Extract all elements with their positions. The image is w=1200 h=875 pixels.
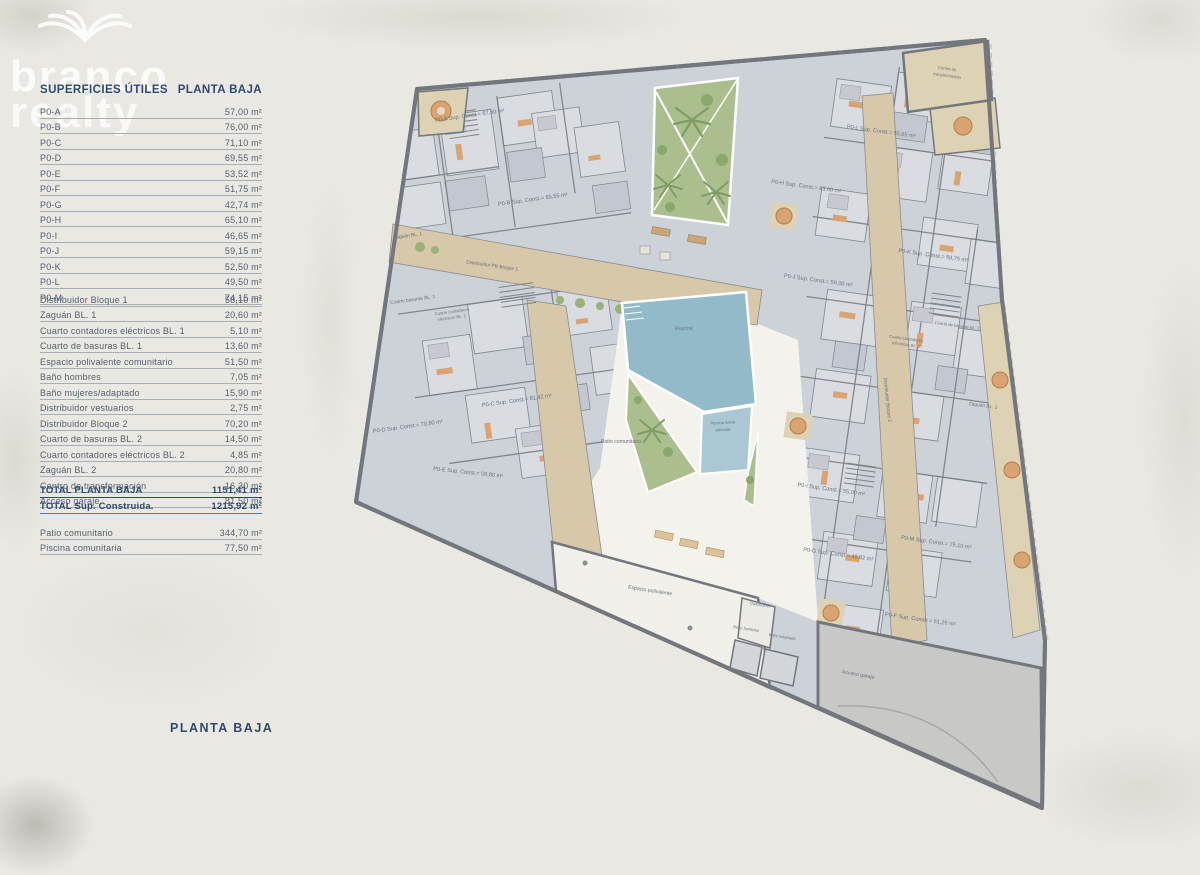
- table-row: Espacio polivalente comunitario51,50 m²: [40, 353, 262, 369]
- row-value: 4,85 m²: [230, 450, 262, 460]
- row-label: Distribuidor Bloque 2: [40, 419, 128, 429]
- row-label: P0-L: [40, 277, 60, 287]
- row-value: 20,80 m²: [225, 465, 262, 475]
- row-label: TOTAL PLANTA BAJA: [40, 485, 143, 496]
- row-label: P0-G: [40, 200, 62, 210]
- totals-table: TOTAL PLANTA BAJA1151,41 m²TOTAL Sup. Co…: [40, 481, 262, 514]
- row-value: 71,10 m²: [225, 138, 262, 148]
- row-value: 15,90 m²: [225, 388, 262, 398]
- raised-pool: [700, 406, 752, 474]
- row-value: 51,50 m²: [225, 357, 262, 367]
- row-label: Cuarto de basuras BL. 2: [40, 434, 142, 444]
- row-label: Cuarto contadores eléctricos BL. 2: [40, 450, 185, 460]
- table-row: Baño mujeres/adaptado15,90 m²: [40, 384, 262, 400]
- row-value: 53,52 m²: [225, 169, 262, 179]
- row-value: 52,50 m²: [225, 262, 262, 272]
- table-row: Distribuidor vestuarios2,75 m²: [40, 400, 262, 416]
- table-row: P0-D69,55 m²: [40, 150, 262, 166]
- row-value: 76,00 m²: [225, 122, 262, 132]
- table-row: Baño hombres7,05 m²: [40, 369, 262, 385]
- row-value: 13,60 m²: [225, 341, 262, 351]
- row-label: Zaguán BL. 2: [40, 465, 96, 475]
- table-row: Cuarto contadores eléctricos BL. 24,85 m…: [40, 446, 262, 462]
- row-label: P0-J: [40, 246, 59, 256]
- table-row: Piscina comunitaria77,50 m²: [40, 540, 262, 556]
- table-row: P0-F51,75 m²: [40, 181, 262, 197]
- table-row: P0-A57,00 m²: [40, 103, 262, 119]
- table-row: Cuarto de basuras BL. 214,50 m²: [40, 431, 262, 447]
- row-label: P0-I: [40, 231, 57, 241]
- extras-table: Patio comunitario344,70 m²Piscina comuni…: [40, 524, 262, 555]
- table-row: Cuarto contadores eléctricos BL. 15,10 m…: [40, 322, 262, 338]
- row-value: 69,55 m²: [225, 153, 262, 163]
- row-value: 65,10 m²: [225, 215, 262, 225]
- row-label: Patio comunitario: [40, 528, 113, 538]
- palm-logo-icon: [10, 10, 160, 52]
- row-label: Distribuidor Bloque 1: [40, 295, 128, 305]
- row-value: 77,50 m²: [225, 543, 262, 553]
- row-label: Piscina comunitaria: [40, 543, 122, 553]
- row-value: 59,15 m²: [225, 246, 262, 256]
- table-header: SUPERFICIES ÚTILES PLANTA BAJA: [40, 84, 262, 96]
- header-planta-baja: PLANTA BAJA: [178, 84, 262, 96]
- row-value: 14,50 m²: [225, 434, 262, 444]
- row-label: Cuarto contadores eléctricos BL. 1: [40, 326, 185, 336]
- table-row: P0-H65,10 m²: [40, 212, 262, 228]
- row-value: 70,20 m²: [225, 419, 262, 429]
- row-value: 46,65 m²: [225, 231, 262, 241]
- row-label: Baño mujeres/adaptado: [40, 388, 140, 398]
- row-label: P0-B: [40, 122, 61, 132]
- row-label: P0-E: [40, 169, 61, 179]
- header-superficies: SUPERFICIES ÚTILES: [40, 84, 168, 96]
- table-row: P0-J59,15 m²: [40, 243, 262, 259]
- row-label: Espacio polivalente comunitario: [40, 357, 173, 367]
- table-row: TOTAL Sup. Construida.1215,92 m²: [40, 498, 262, 515]
- row-label: Baño hombres: [40, 372, 101, 382]
- table-row: P0-K52,50 m²: [40, 258, 262, 274]
- table-row: P0-C71,10 m²: [40, 134, 262, 150]
- row-value: 51,75 m²: [225, 184, 262, 194]
- row-label: P0-C: [40, 138, 61, 148]
- table-row: Zaguán BL. 220,80 m²: [40, 462, 262, 478]
- row-value: 49,50 m²: [225, 277, 262, 287]
- row-value: 1215,92 m²: [211, 501, 262, 512]
- row-label: Distribuidor vestuarios: [40, 403, 134, 413]
- table-row: P0-L49,50 m²: [40, 274, 262, 290]
- page-title: PLANTA BAJA: [170, 721, 273, 735]
- row-value: 1151,41 m²: [212, 485, 262, 496]
- row-value: 344,70 m²: [220, 528, 262, 538]
- row-label: P0-A: [40, 107, 61, 117]
- table-row: P0-G42,74 m²: [40, 196, 262, 212]
- row-value: 58,10 m²: [225, 295, 262, 305]
- table-row: Patio comunitario344,70 m²: [40, 524, 262, 540]
- raised-pool-label: elevada: [715, 427, 731, 433]
- table-row: Zaguán BL. 120,60 m²: [40, 307, 262, 323]
- row-label: P0-D: [40, 153, 61, 163]
- units-table: P0-A57,00 m²P0-B76,00 m²P0-C71,10 m²P0-D…: [40, 103, 262, 305]
- row-value: 2,75 m²: [230, 403, 262, 413]
- table-row: Cuarto de basuras BL. 113,60 m²: [40, 338, 262, 354]
- row-label: P0-H: [40, 215, 61, 225]
- table-row: Distribuidor Bloque 270,20 m²: [40, 415, 262, 431]
- row-value: 5,10 m²: [230, 326, 262, 336]
- row-label: TOTAL Sup. Construida.: [40, 501, 154, 512]
- surface-table-panel: branco realty SUPERFICIES ÚTILES PLANTA …: [0, 0, 320, 849]
- table-row: TOTAL PLANTA BAJA1151,41 m²: [40, 481, 262, 498]
- row-value: 42,74 m²: [225, 200, 262, 210]
- row-label: P0-F: [40, 184, 60, 194]
- row-label: P0-K: [40, 262, 61, 272]
- row-label: Cuarto de basuras BL. 1: [40, 341, 142, 351]
- row-value: 20,60 m²: [225, 310, 262, 320]
- pool-label: Piscina: [675, 326, 693, 333]
- common-areas-table: Distribuidor Bloque 158,10 m²Zaguán BL. …: [40, 291, 262, 508]
- row-label: Zaguán BL. 1: [40, 310, 96, 320]
- row-value: 7,05 m²: [230, 372, 262, 382]
- row-value: 57,00 m²: [225, 107, 262, 117]
- table-row: P0-B76,00 m²: [40, 119, 262, 135]
- patio-label: Patio comunitario: [601, 439, 641, 445]
- table-row: Distribuidor Bloque 158,10 m²: [40, 291, 262, 307]
- table-row: P0-I46,65 m²: [40, 227, 262, 243]
- table-row: P0-E53,52 m²: [40, 165, 262, 181]
